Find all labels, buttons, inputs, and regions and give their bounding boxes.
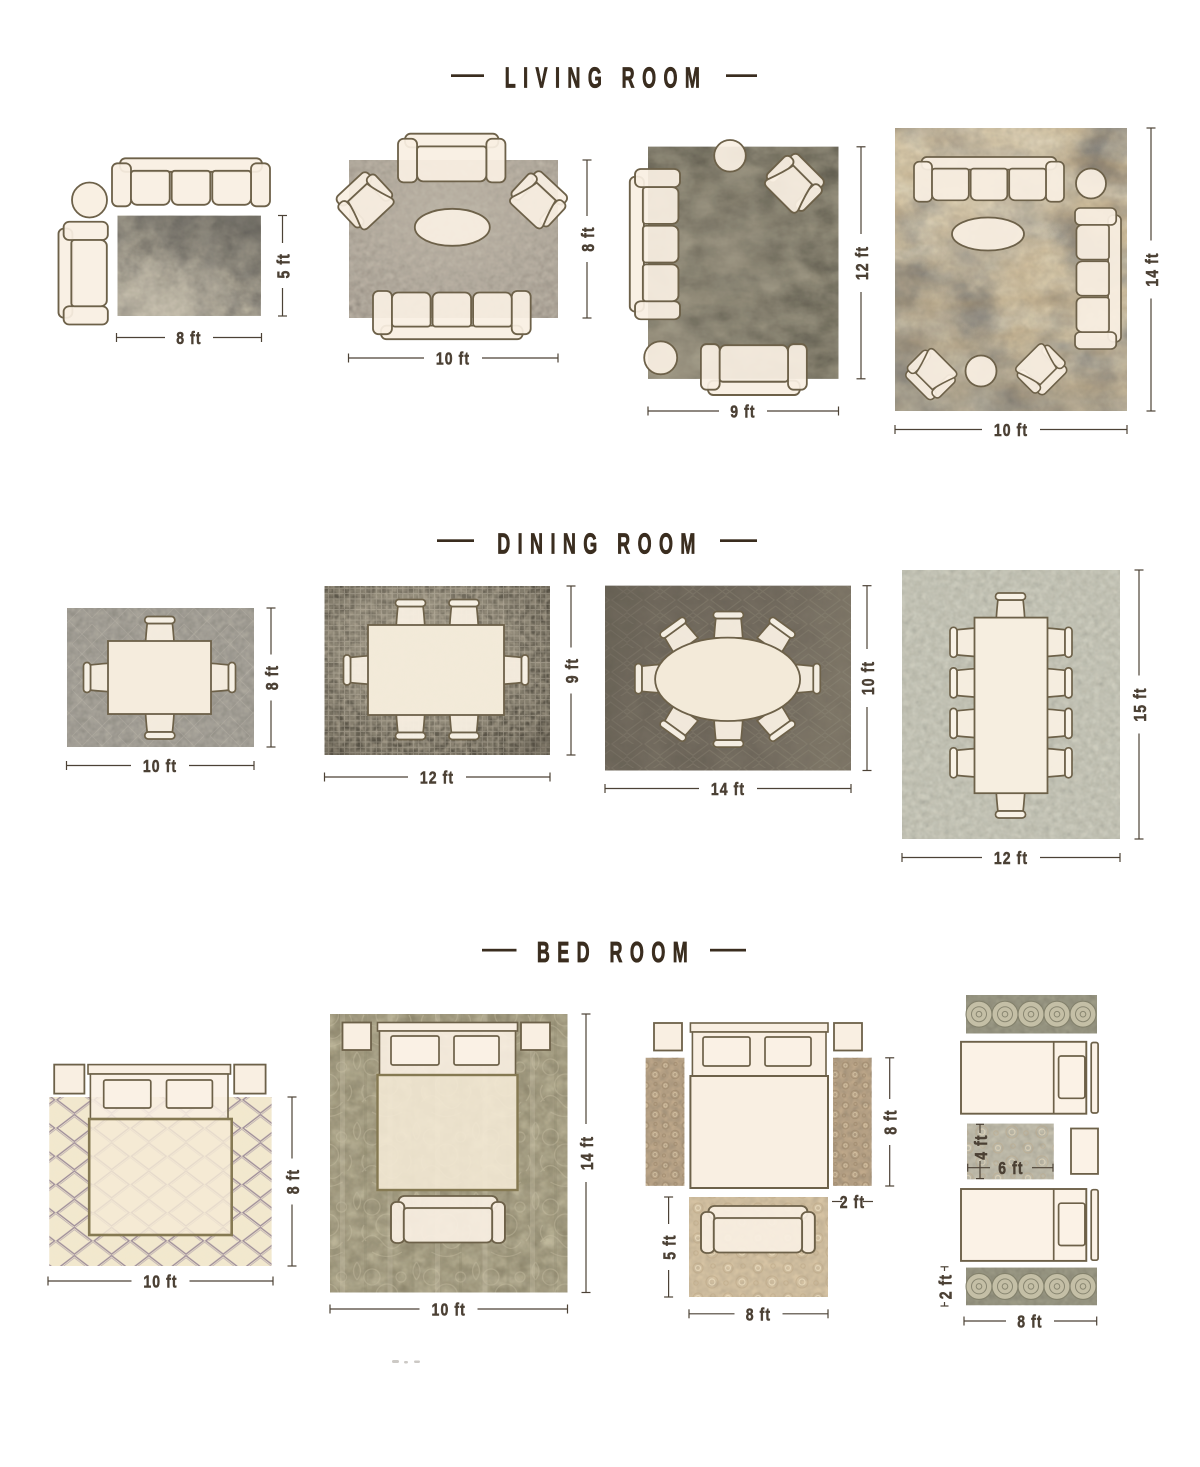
svg-text:9 ft: 9 ft bbox=[730, 402, 755, 422]
svg-text:LIVING ROOM: LIVING ROOM bbox=[505, 62, 708, 94]
svg-text:9 ft: 9 ft bbox=[562, 658, 582, 683]
svg-text:8 ft: 8 ft bbox=[262, 665, 282, 690]
svg-text:6 ft: 6 ft bbox=[998, 1158, 1023, 1178]
svg-text:14 ft: 14 ft bbox=[711, 779, 745, 799]
svg-text:10 ft: 10 ft bbox=[143, 756, 177, 776]
svg-text:10 ft: 10 ft bbox=[994, 420, 1028, 440]
svg-text:DINING ROOM: DINING ROOM bbox=[497, 528, 703, 560]
svg-text:8 ft: 8 ft bbox=[1017, 1312, 1042, 1332]
svg-text:8 ft: 8 ft bbox=[881, 1109, 901, 1134]
svg-text:10 ft: 10 ft bbox=[858, 661, 878, 695]
svg-text:12 ft: 12 ft bbox=[420, 768, 454, 788]
svg-text:8 ft: 8 ft bbox=[746, 1305, 771, 1325]
svg-text:8 ft: 8 ft bbox=[578, 226, 598, 251]
svg-text:5 ft: 5 ft bbox=[274, 253, 294, 278]
svg-text:8 ft: 8 ft bbox=[283, 1169, 303, 1194]
svg-text:2 ft: 2 ft bbox=[840, 1192, 865, 1212]
svg-text:8 ft: 8 ft bbox=[176, 328, 201, 348]
svg-text:12 ft: 12 ft bbox=[852, 246, 872, 280]
svg-text:14 ft: 14 ft bbox=[577, 1136, 597, 1170]
svg-text:2 ft: 2 ft bbox=[936, 1274, 956, 1299]
svg-text:4 ft: 4 ft bbox=[971, 1134, 991, 1159]
svg-text:10 ft: 10 ft bbox=[432, 1300, 466, 1320]
svg-text:10 ft: 10 ft bbox=[143, 1272, 177, 1292]
svg-text:12 ft: 12 ft bbox=[994, 848, 1028, 868]
svg-text:10 ft: 10 ft bbox=[436, 349, 470, 369]
svg-text:BED ROOM: BED ROOM bbox=[537, 937, 695, 969]
svg-text:15 ft: 15 ft bbox=[1130, 687, 1150, 721]
svg-text:14 ft: 14 ft bbox=[1142, 252, 1162, 286]
svg-text:5 ft: 5 ft bbox=[660, 1234, 680, 1259]
